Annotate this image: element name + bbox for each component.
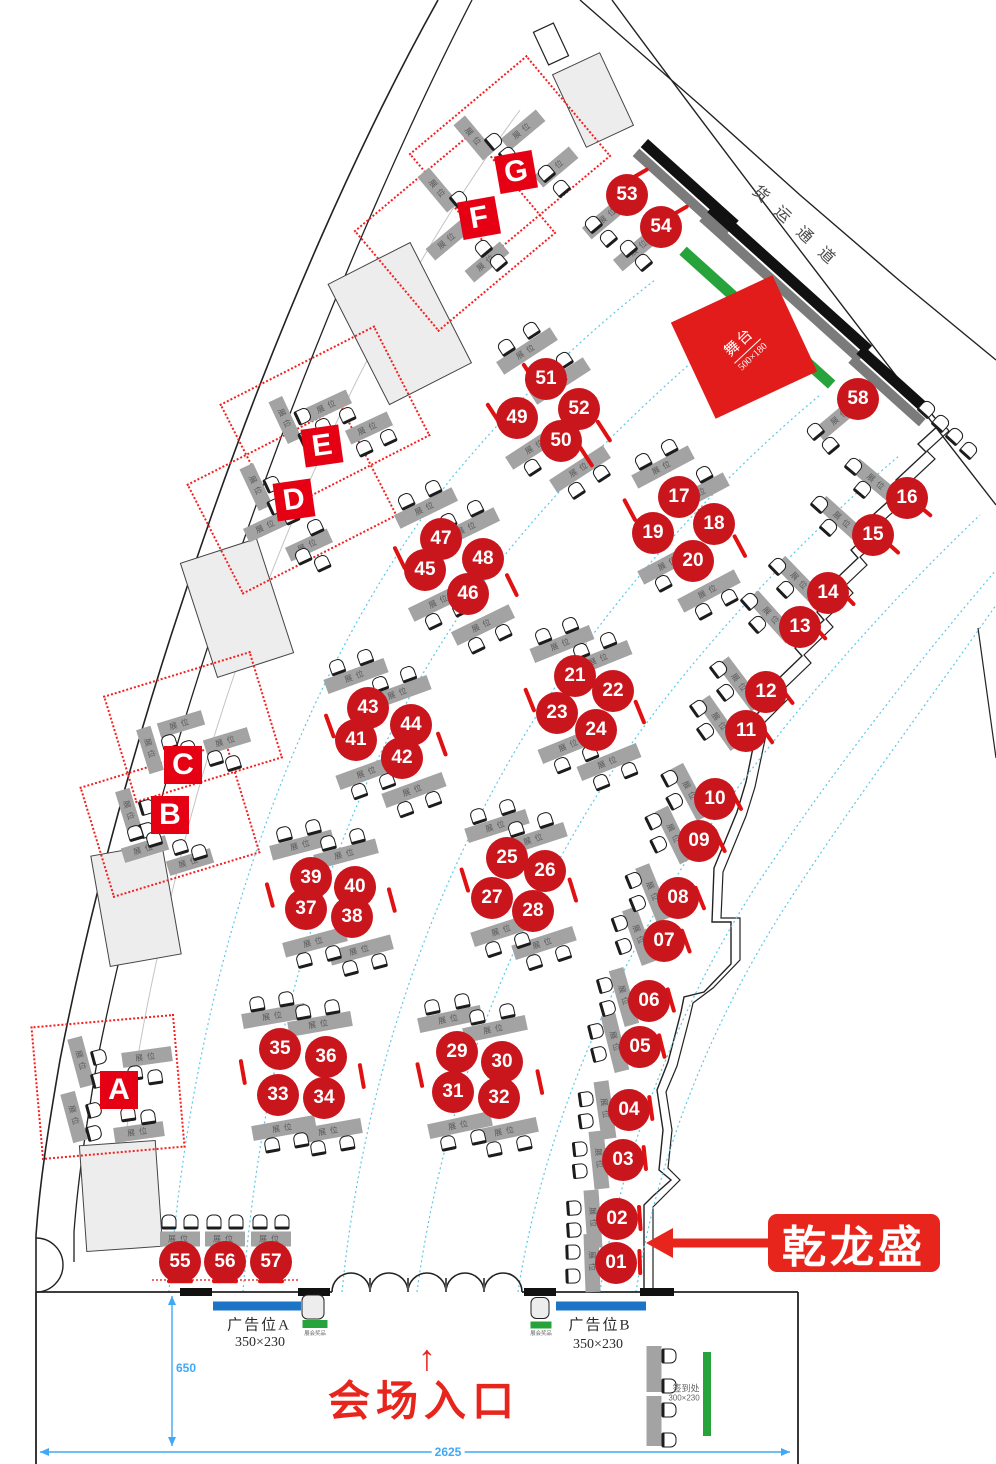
booth-circle-21: 21: [554, 655, 596, 697]
booth-circle-33: 33: [257, 1074, 299, 1116]
ad-a-gift-box: [302, 1295, 325, 1320]
booth-circle-53: 53: [606, 174, 648, 216]
booth-circle-18: 18: [693, 503, 735, 545]
floor-plan: GFEDCBA展位展位展位展位展位展位展位展位展位展位展位展位展位展位展位展位展…: [0, 0, 996, 1464]
booth-circle-12: 12: [745, 671, 787, 713]
booth-circle-43: 43: [347, 687, 389, 729]
zone-label-B: B: [151, 796, 189, 834]
booth-circle-54: 54: [640, 206, 682, 248]
dimension-width-label: 2625: [432, 1445, 465, 1459]
booth-circle-07: 07: [643, 920, 685, 962]
ad-a-banner: [213, 1302, 301, 1311]
booth-circle-11: 11: [725, 710, 767, 752]
booth-circle-16: 16: [886, 477, 928, 519]
ad-b-green-bar: [531, 1322, 552, 1329]
booth-circle-47: 47: [420, 518, 462, 560]
chair-icon: [572, 1163, 588, 1179]
booth-circle-49: 49: [496, 397, 538, 439]
ad-b-size: 350×230: [573, 1337, 623, 1353]
chair-icon: [294, 1003, 311, 1020]
chair-icon: [275, 1215, 290, 1230]
zone-label-D: D: [273, 479, 316, 522]
chair-icon: [147, 1069, 164, 1086]
ad-b-label: 广告位B: [568, 1314, 631, 1335]
chair-icon: [572, 1141, 588, 1157]
chair-icon: [162, 1215, 177, 1230]
chair-icon: [184, 1215, 199, 1230]
ad-a-size: 350×230: [235, 1335, 285, 1351]
booth-circle-48: 48: [462, 538, 504, 580]
zone-label-C: C: [164, 746, 202, 784]
booth-circle-26: 26: [524, 850, 566, 892]
booth-circle-34: 34: [303, 1077, 345, 1119]
ad-b-gift-label: 展会奖品: [530, 1329, 552, 1337]
booth-circle-44: 44: [390, 704, 432, 746]
booth-circle-51: 51: [525, 358, 567, 400]
chair-icon: [566, 1222, 582, 1238]
chair-icon: [323, 998, 340, 1015]
company-callout: 乾龙盛: [768, 1214, 940, 1272]
chair-icon: [207, 1215, 222, 1230]
ad-b-banner: [556, 1302, 646, 1311]
signin-size: 300×230: [668, 1394, 699, 1403]
booth-circle-22: 22: [592, 670, 634, 712]
booth-circle-03: 03: [602, 1139, 644, 1181]
chair-icon: [309, 1139, 326, 1156]
company-arrow-head: [646, 1228, 673, 1258]
chair-icon: [277, 990, 294, 1007]
booth-circle-24: 24: [575, 709, 617, 751]
chair-icon: [662, 1349, 677, 1364]
chair-icon: [338, 1134, 355, 1151]
booth-circle-36: 36: [305, 1036, 347, 1078]
booth-circle-31: 31: [432, 1071, 474, 1113]
zone-label-G: G: [494, 150, 538, 194]
booth-circle-04: 04: [608, 1089, 650, 1131]
chair-icon: [253, 1215, 268, 1230]
booth-circle-19: 19: [632, 512, 674, 554]
booth-circle-58: 58: [837, 378, 879, 420]
booth-table: [647, 1396, 662, 1446]
chair-icon: [292, 1131, 309, 1148]
booth-circle-06: 06: [628, 980, 670, 1022]
booth-circle-08: 08: [657, 877, 699, 919]
chair-icon: [263, 1136, 280, 1153]
booth-circle-40: 40: [334, 866, 376, 908]
ad-a-gift-label: 展会奖品: [304, 1329, 326, 1337]
booth-table: [647, 1346, 662, 1392]
booth-circle-05: 05: [619, 1026, 661, 1068]
chair-icon: [662, 1403, 677, 1418]
booth-circle-35: 35: [259, 1028, 301, 1070]
entrance-label: 会场入口: [328, 1368, 520, 1429]
zone-label-A: A: [100, 1071, 138, 1109]
chair-icon: [566, 1200, 582, 1216]
booth-circle-32: 32: [478, 1077, 520, 1119]
booth-circle-15: 15: [852, 514, 894, 556]
booth-circle-01: 01: [595, 1242, 637, 1284]
ad-b-gift-box: [531, 1297, 550, 1319]
booth-circle-29: 29: [436, 1031, 478, 1073]
booth-circle-17: 17: [658, 476, 700, 518]
entrance-door-leaves: [370, 1278, 484, 1292]
zone-label-E: E: [301, 425, 344, 468]
chair-icon: [248, 995, 265, 1012]
booth-circle-52: 52: [558, 388, 600, 430]
zone-label-F: F: [457, 196, 501, 240]
chair-icon: [565, 1268, 581, 1284]
booth-circle-14: 14: [807, 572, 849, 614]
stage-label: 舞台 500×180: [718, 321, 769, 372]
top-door: [533, 23, 568, 65]
booth-circle-57: 57: [250, 1241, 292, 1283]
booth-circle-28: 28: [512, 890, 554, 932]
exterior-wall-segment: [978, 628, 996, 758]
booth-circle-10: 10: [694, 778, 736, 820]
company-arrow-shaft: [672, 1239, 772, 1248]
booth-circle-20: 20: [672, 540, 714, 582]
chair-icon: [140, 1109, 157, 1126]
booth-circle-23: 23: [536, 692, 578, 734]
ad-a-green-bar: [303, 1320, 328, 1328]
booth-circle-56: 56: [204, 1241, 246, 1283]
entrance-door-arcs: [332, 1273, 522, 1292]
dimension-height-label: 650: [173, 1361, 199, 1375]
booth-circle-09: 09: [678, 820, 720, 862]
ad-a-label: 广告位A: [227, 1314, 291, 1335]
booth-circle-27: 27: [471, 877, 513, 919]
chair-icon: [229, 1215, 244, 1230]
booth-circle-13: 13: [779, 606, 821, 648]
booth-circle-25: 25: [486, 837, 528, 879]
booth-circle-39: 39: [290, 857, 332, 899]
booth-circle-02: 02: [596, 1198, 638, 1240]
signin-green-bar: [703, 1352, 711, 1436]
booth-circle-55: 55: [159, 1241, 201, 1283]
chair-icon: [565, 1244, 581, 1260]
side-door-arcs: [36, 1238, 63, 1292]
chair-icon: [662, 1433, 677, 1448]
